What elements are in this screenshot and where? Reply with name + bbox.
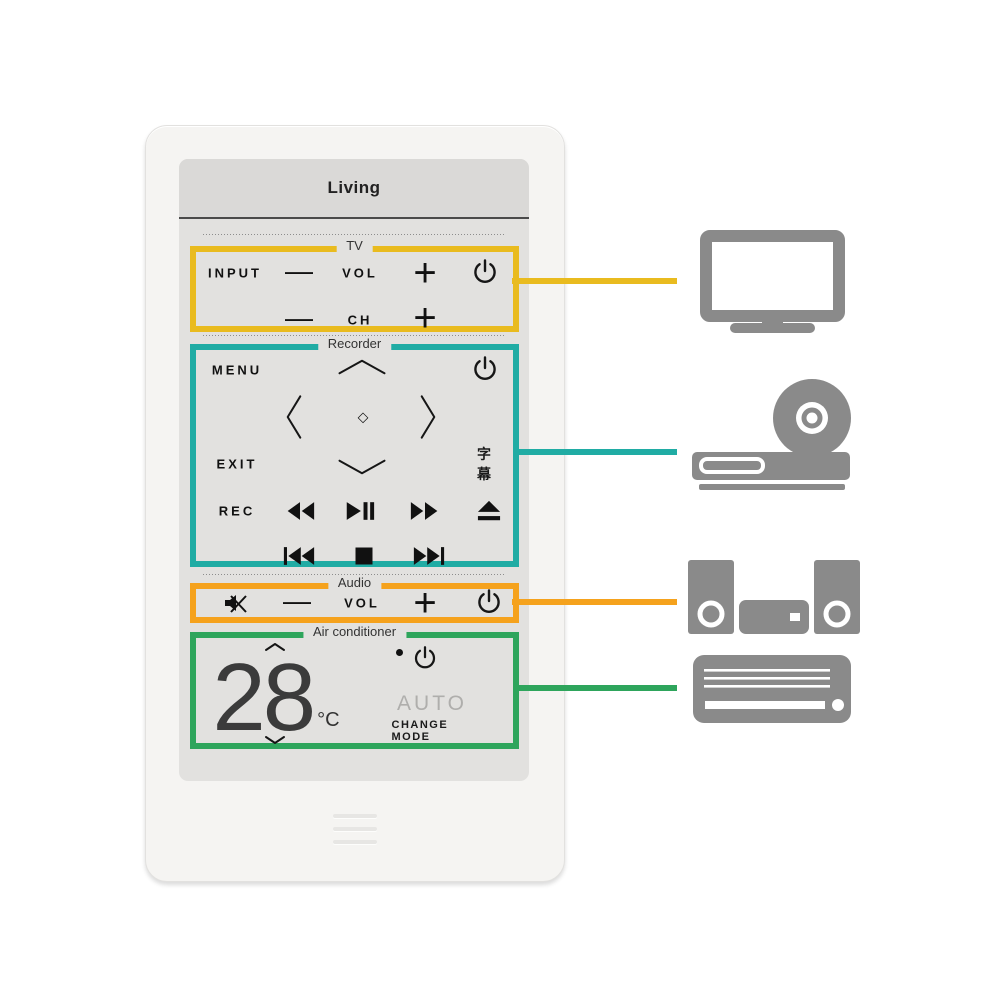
tv-icon — [700, 230, 845, 333]
screen-header: Living — [179, 159, 529, 219]
grille-line — [333, 814, 377, 818]
tv-volume-up-button[interactable]: + — [413, 253, 436, 293]
ac-change-mode-button[interactable]: CHANGE MODE — [392, 719, 473, 743]
recorder-callout-line — [515, 449, 677, 455]
power-icon — [469, 257, 501, 289]
ac-temperature-display: 28 °C — [212, 656, 339, 740]
air-conditioner-panel: Air conditioner 28 °C AUTO CHANGE MODE — [190, 632, 519, 749]
recorder-menu-button[interactable]: MENU — [212, 363, 262, 378]
recorder-fast-forward-button[interactable] — [410, 501, 440, 521]
ac-mode-display: AUTO — [397, 692, 467, 716]
audio-panel-label: Audio — [328, 575, 381, 590]
ac-panel-label: Air conditioner — [303, 624, 406, 639]
power-icon — [469, 354, 501, 386]
remote-control: Living TV INPUT — VOL + — CH + Re — [145, 125, 565, 882]
recorder-stop-button[interactable] — [356, 548, 373, 565]
recorder-left-button[interactable] — [285, 393, 303, 441]
tv-ch-label: CH — [348, 313, 373, 328]
tv-panel-label: TV — [336, 238, 373, 253]
recorder-right-button[interactable] — [419, 393, 437, 441]
power-icon — [410, 644, 440, 674]
remote-touchscreen: Living TV INPUT — VOL + — CH + Re — [179, 159, 529, 781]
speaker-grille — [333, 814, 377, 853]
room-title: Living — [327, 178, 380, 198]
recorder-rewind-button[interactable] — [285, 501, 315, 521]
recorder-ok-button[interactable]: ◇ — [358, 409, 369, 426]
audio-callout-line — [512, 599, 677, 605]
fast-forward-icon — [410, 501, 440, 521]
audio-vol-label: VOL — [344, 596, 380, 611]
recorder-power-button[interactable] — [469, 354, 501, 386]
chevron-up-icon — [336, 358, 388, 376]
recorder-down-button[interactable] — [336, 458, 388, 476]
disc-recorder-device — [690, 378, 855, 490]
recorder-rec-button[interactable]: REC — [219, 504, 255, 519]
stop-icon — [356, 548, 373, 565]
television-device — [700, 230, 845, 333]
tv-vol-label: VOL — [342, 266, 378, 281]
recorder-exit-button[interactable]: EXIT — [217, 457, 258, 472]
tv-panel: TV INPUT — VOL + — CH + — [190, 246, 519, 332]
tv-power-button[interactable] — [469, 257, 501, 289]
recorder-panel: Recorder MENU ◇ EXIT — [190, 344, 519, 567]
tv-input-button[interactable]: INPUT — [208, 266, 262, 281]
grille-line — [333, 840, 377, 844]
play-pause-icon — [345, 501, 375, 521]
tv-volume-down-button[interactable]: — — [285, 255, 313, 287]
previous-track-icon — [283, 546, 315, 566]
recorder-next-button[interactable] — [413, 546, 445, 566]
next-track-icon — [413, 546, 445, 566]
eject-icon — [477, 501, 501, 522]
audio-power-button[interactable] — [473, 587, 505, 619]
ac-power-indicator-dot — [396, 649, 403, 656]
ac-temperature-unit: °C — [317, 709, 339, 732]
audio-system-icon — [688, 560, 860, 636]
rewind-icon — [285, 501, 315, 521]
recorder-panel-label: Recorder — [318, 336, 391, 351]
recorder-up-button[interactable] — [336, 358, 388, 376]
recorder-play-pause-button[interactable] — [345, 501, 375, 521]
audio-system-device — [688, 560, 860, 636]
audio-volume-up-button[interactable]: + — [413, 583, 436, 623]
audio-panel: Audio — VOL + — [190, 583, 519, 623]
chevron-down-icon — [336, 458, 388, 476]
ac-power-button[interactable] — [396, 644, 440, 674]
disc-recorder-icon — [690, 378, 855, 490]
ac-temp-down-button[interactable] — [264, 735, 286, 745]
ac-callout-line — [515, 685, 677, 691]
chevron-down-icon — [264, 735, 286, 745]
grille-line — [333, 827, 377, 831]
product-diagram: Living TV INPUT — VOL + — CH + Re — [0, 0, 1000, 1001]
audio-mute-button[interactable] — [223, 591, 249, 615]
recorder-subtitle-button[interactable]: 字幕 — [477, 444, 501, 484]
recorder-eject-button[interactable] — [477, 501, 501, 522]
tv-callout-line — [512, 278, 677, 284]
air-conditioner-icon — [693, 655, 851, 723]
power-icon — [473, 587, 505, 619]
tv-channel-down-button[interactable]: — — [285, 302, 313, 334]
tv-channel-up-button[interactable]: + — [413, 298, 436, 338]
audio-volume-down-button[interactable]: — — [283, 585, 311, 617]
ac-temperature-value: 28 — [212, 656, 313, 740]
mute-icon — [223, 591, 249, 615]
section-divider — [203, 234, 505, 235]
air-conditioner-device — [693, 655, 851, 723]
recorder-previous-button[interactable] — [283, 546, 315, 566]
chevron-left-icon — [285, 393, 303, 441]
chevron-right-icon — [419, 393, 437, 441]
